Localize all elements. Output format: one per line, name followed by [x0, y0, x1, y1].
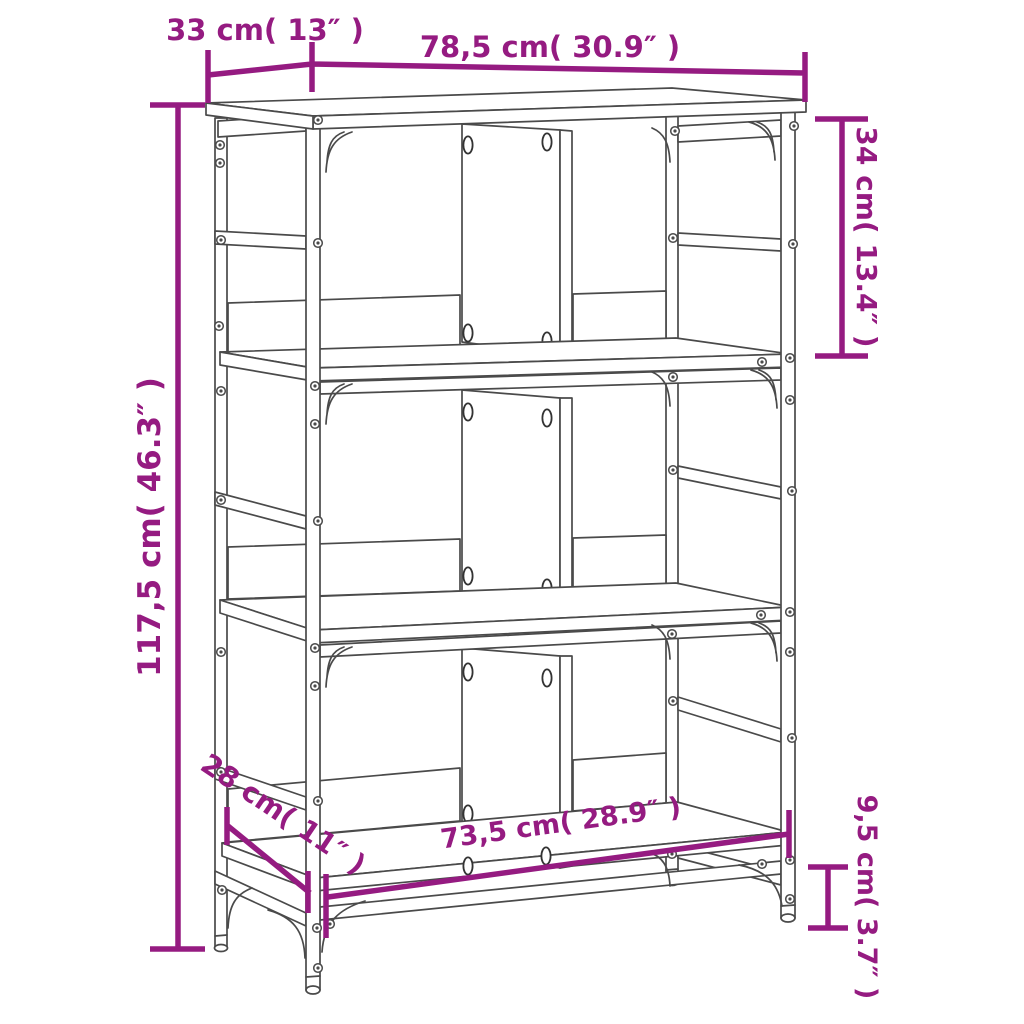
dim-line-foot-height	[808, 867, 848, 928]
product-dimension-image: 33 cm( 13″ ) 78,5 cm( 30.9″ ) 34 cm( 13.…	[0, 0, 1024, 1024]
label-foot-height: 9,5 cm( 3.7″ )	[851, 795, 882, 1000]
label-top-depth: 33 cm( 13″ )	[166, 13, 364, 47]
bookshelf-drawing	[206, 88, 806, 994]
center-dividers	[462, 124, 572, 868]
label-total-height: 117,5 cm( 46.3″ )	[132, 377, 168, 677]
top-panel	[206, 88, 806, 129]
label-top-width: 78,5 cm( 30.9″ )	[420, 30, 680, 64]
bookshelf-dimension-diagram: 33 cm( 13″ ) 78,5 cm( 30.9″ ) 34 cm( 13.…	[0, 0, 1024, 1024]
label-upper-section-height: 34 cm( 13.4″ )	[850, 126, 883, 347]
right-side-rails	[678, 120, 781, 885]
